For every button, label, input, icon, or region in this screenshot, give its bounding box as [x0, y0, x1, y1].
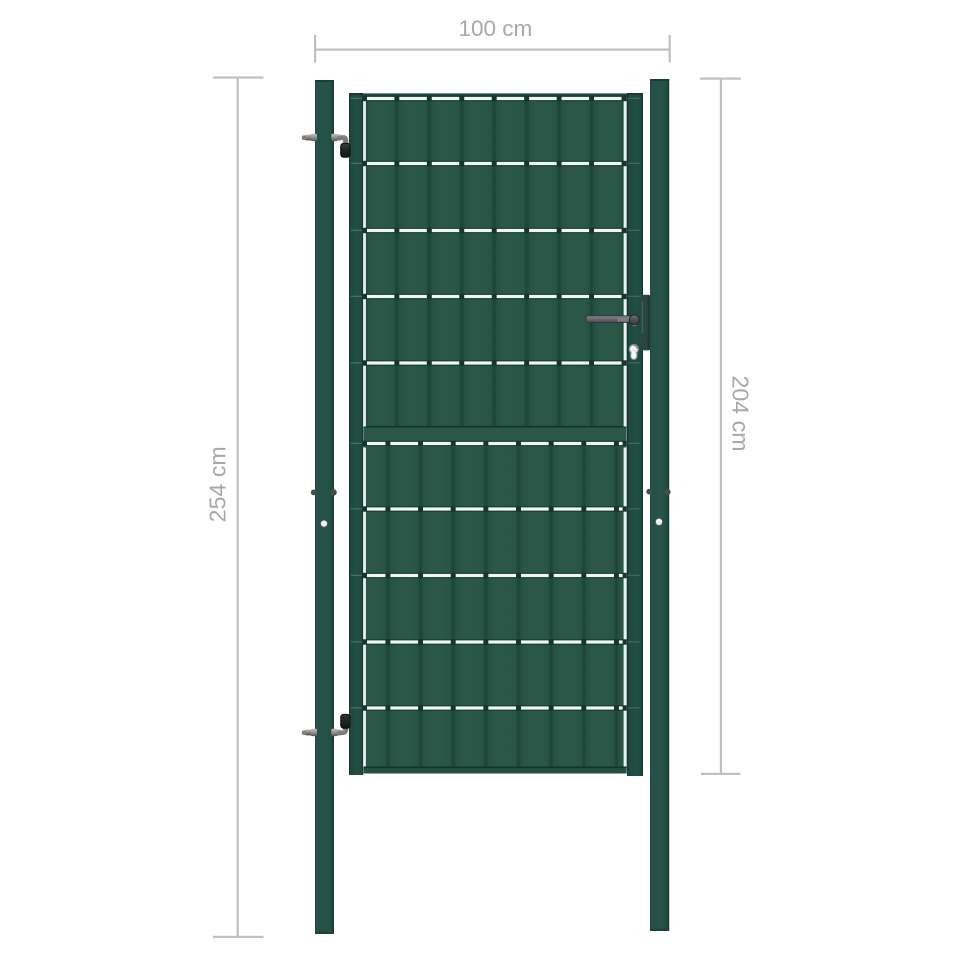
- svg-text:204 cm: 204 cm: [727, 375, 753, 451]
- svg-text:254 cm: 254 cm: [205, 446, 231, 522]
- svg-text:100 cm: 100 cm: [459, 16, 533, 41]
